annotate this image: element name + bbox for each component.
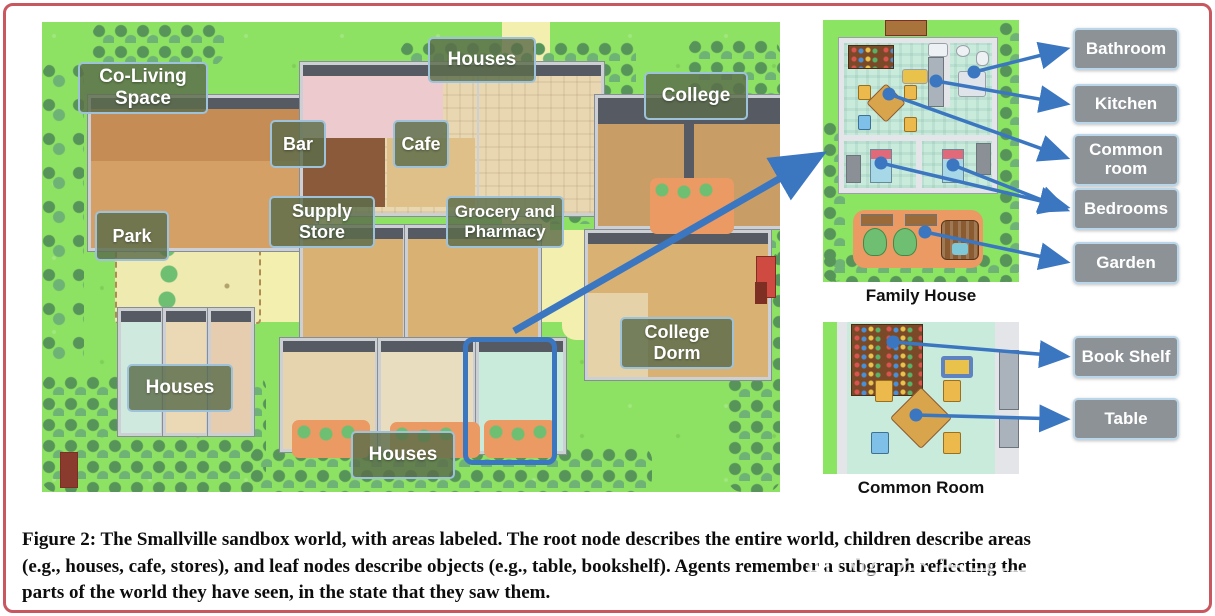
flowerbed: [905, 214, 937, 226]
garden-tree: [893, 228, 917, 256]
red-truck-right: [755, 282, 767, 304]
house-rooms: [477, 76, 479, 207]
room-label-garden: Garden: [1073, 242, 1179, 284]
kitchen-counter: [928, 57, 944, 107]
chair: [943, 380, 961, 402]
chair: [904, 85, 917, 100]
map-area-label-bar: Bar: [270, 120, 326, 168]
map-area-label-college: College: [644, 72, 748, 120]
room-label-bedrooms: Bedrooms: [1073, 188, 1179, 230]
building-bar-cafe-houses: [300, 62, 604, 216]
chair-blue: [871, 432, 889, 454]
wardrobe-left: [846, 155, 861, 183]
roof: [121, 311, 161, 322]
roof: [588, 233, 768, 244]
appliance-top: [999, 350, 1019, 410]
toilet: [976, 51, 989, 66]
chair: [875, 380, 893, 402]
room-label-table: Table: [1073, 398, 1179, 440]
crates: [885, 20, 927, 36]
family-house-panel: [823, 20, 1019, 282]
roof: [381, 341, 473, 352]
figure-2-screenshot: Co-Living SpaceHousesCollegeBarCafeParkS…: [0, 0, 1215, 616]
appliance-bottom: [999, 418, 1019, 448]
roof: [283, 341, 375, 352]
bookshelf: [848, 45, 894, 69]
zhihu-watermark: 知乎 @百无一用是书生: [806, 543, 1210, 597]
family-house-caption: Family House: [853, 286, 989, 306]
panel-trees-right: [999, 20, 1019, 282]
roof: [211, 311, 251, 322]
wardrobe-right: [976, 143, 991, 175]
roof: [166, 311, 206, 322]
room-label-book-shelf: Book Shelf: [1073, 336, 1179, 378]
room-label-bathroom: Bathroom: [1073, 28, 1179, 70]
bed-right: [942, 149, 964, 183]
figure-label: Figure 2:: [22, 529, 96, 550]
map-area-label-college-dorm: College Dorm: [620, 317, 734, 369]
garden-patch-college: [650, 178, 734, 234]
map-area-label-co-living-space: Co-Living Space: [78, 62, 208, 114]
map-area-label-houses-top: Houses: [428, 37, 536, 83]
common-room-table: [866, 83, 906, 123]
sink: [956, 45, 970, 57]
bed-left: [870, 149, 892, 183]
gazebo-center: [952, 243, 968, 255]
grass-strip: [823, 322, 837, 474]
common-room-caption: Common Room: [849, 478, 993, 498]
map-area-label-houses-bottom-middle: Houses: [351, 431, 455, 479]
left-wall: [837, 322, 847, 474]
chair: [943, 432, 961, 454]
garden-tree: [863, 228, 887, 256]
stove: [928, 43, 948, 57]
gazebo: [941, 220, 979, 260]
map-area-label-cafe: Cafe: [393, 120, 449, 168]
common-room-panel: [823, 322, 1019, 474]
chair: [904, 117, 917, 132]
family-house-floorplan: [839, 38, 997, 193]
highlighted-house-box: [463, 337, 557, 465]
smallville-map: Co-Living SpaceHousesCollegeBarCafeParkS…: [42, 22, 780, 492]
red-truck-bottom-left: [60, 452, 78, 488]
map-area-label-grocery-pharmacy: Grocery and Pharmacy: [446, 196, 564, 248]
wall-bedroom-divider: [916, 135, 922, 188]
room-label-common-room: Common room: [1073, 134, 1179, 186]
map-area-label-park: Park: [95, 211, 169, 261]
family-house-garden: [853, 210, 983, 268]
rug: [902, 69, 928, 84]
trees-top-left: [92, 22, 224, 66]
bathtub: [958, 71, 986, 97]
map-area-label-houses-bottom-left: Houses: [127, 364, 233, 412]
chair-blue: [858, 115, 871, 130]
room-label-kitchen: Kitchen: [1073, 84, 1179, 124]
chair: [858, 85, 871, 100]
map-area-label-supply-store: Supply Store: [269, 196, 375, 248]
flowerbed: [861, 214, 893, 226]
wall-frame: [941, 356, 973, 378]
